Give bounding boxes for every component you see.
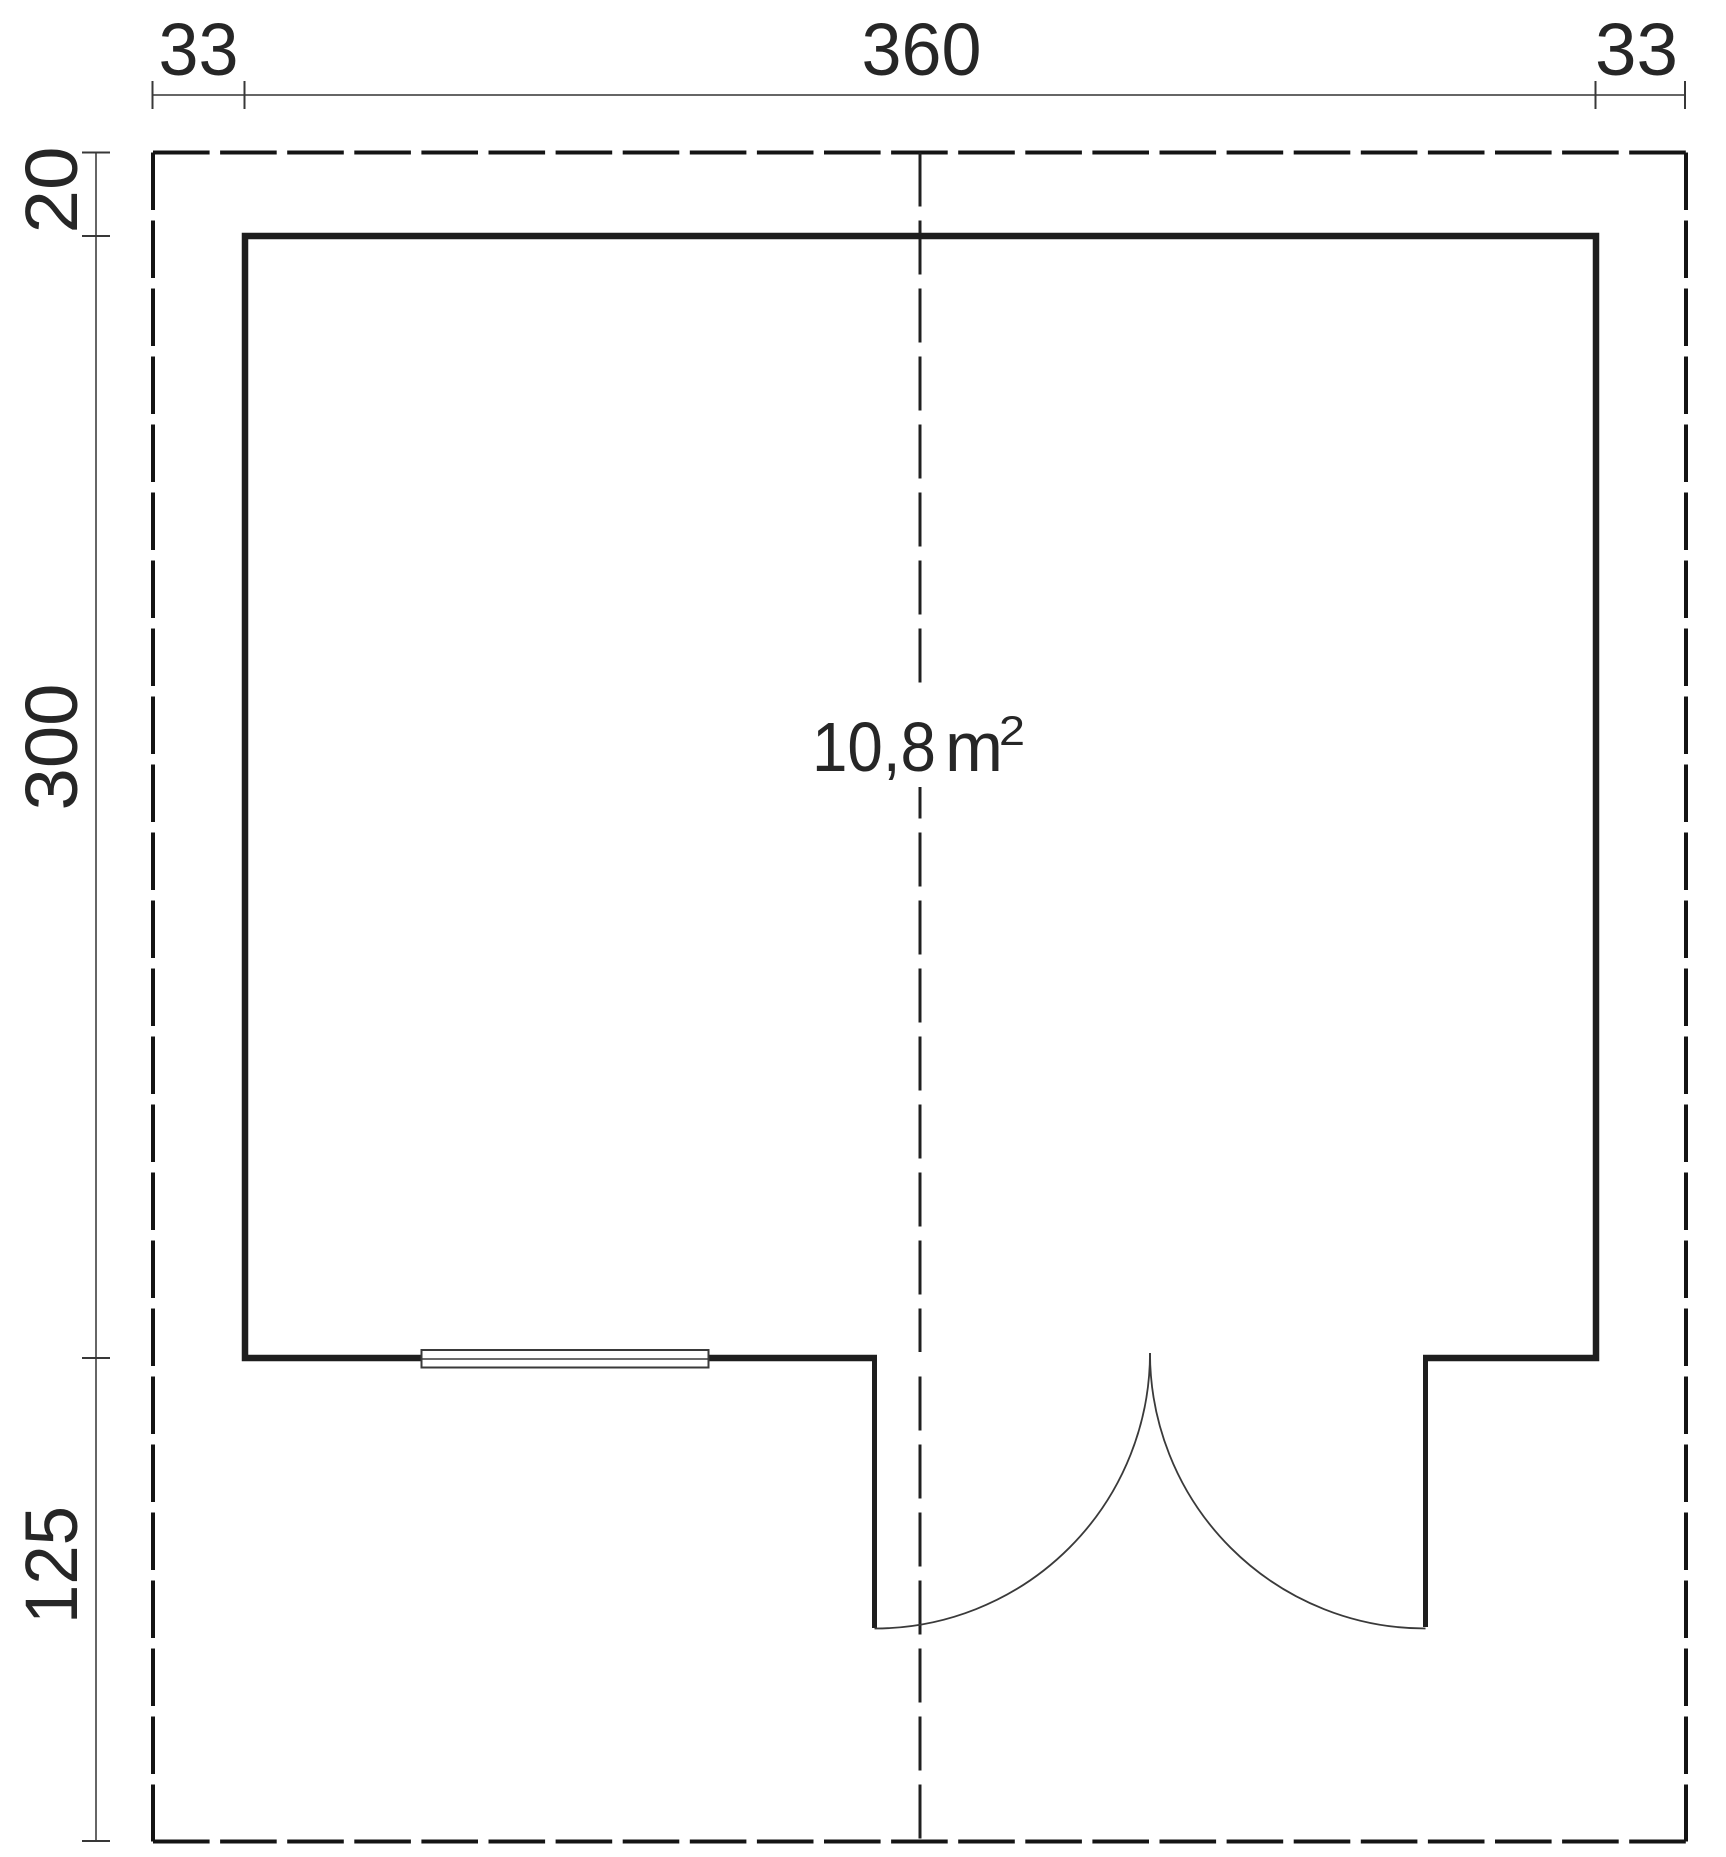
svg-text:33: 33 bbox=[1595, 8, 1678, 91]
svg-text:300: 300 bbox=[10, 684, 93, 811]
svg-text:m: m bbox=[945, 708, 1003, 786]
svg-text:33: 33 bbox=[159, 8, 239, 91]
svg-text:20: 20 bbox=[10, 147, 93, 234]
svg-text:125: 125 bbox=[10, 1506, 93, 1624]
svg-text:10,8: 10,8 bbox=[812, 708, 936, 786]
svg-text:360: 360 bbox=[862, 8, 982, 91]
svg-text:2: 2 bbox=[999, 707, 1025, 754]
